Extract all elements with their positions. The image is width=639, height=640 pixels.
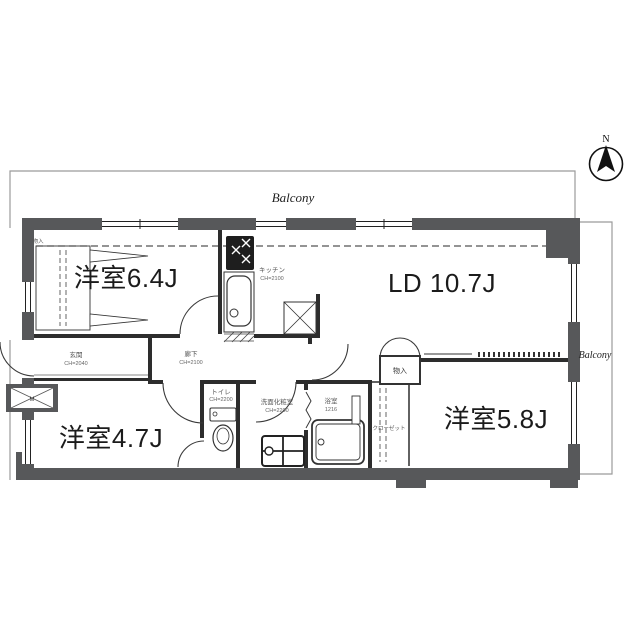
bedroom2-label: 洋室4.7J xyxy=(59,423,163,453)
meter-box-label: M xyxy=(30,397,35,403)
balcony-top-label: Balcony xyxy=(272,190,315,205)
hallway-label: 廊下 xyxy=(185,349,199,358)
bathroom-label: 浴室 xyxy=(325,396,339,405)
window-right-bedroom3 xyxy=(568,382,580,444)
meter-box: M xyxy=(6,384,58,412)
hallway-ch: CH=2100 xyxy=(179,360,202,366)
washing-machine-icon xyxy=(262,436,304,466)
balcony-right-label: Balcony xyxy=(579,350,612,361)
floor-plan-svg: M xyxy=(0,0,639,640)
bath-fixture xyxy=(352,396,360,424)
compass-north-label: N xyxy=(602,134,609,145)
kitchen-label: キッチン xyxy=(259,266,285,274)
toilet-ch: CH=2200 xyxy=(209,397,232,403)
window-top-living xyxy=(356,218,412,230)
toilet-label: トイレ xyxy=(211,389,231,396)
kitchen-ch: CH=2100 xyxy=(260,276,283,282)
bedroom3-label: 洋室5.8J xyxy=(444,404,548,434)
living-dining-label: LD 10.7J xyxy=(388,268,496,298)
window-left-bedroom2 xyxy=(22,420,34,464)
window-left-bedroom1 xyxy=(22,282,34,312)
window-right-living xyxy=(568,264,580,322)
bedroom1-label: 洋室6.4J xyxy=(74,263,178,293)
bathroom-size: 1216 xyxy=(325,407,337,413)
entrance-ch: CH=2040 xyxy=(64,361,87,367)
kitchen-sink-icon xyxy=(224,272,254,332)
living-storage-label: 物入 xyxy=(393,366,407,375)
stove-icon xyxy=(226,236,254,270)
bedroom1-storage-label: 物入 xyxy=(32,237,44,245)
washroom-ch: CH=2200 xyxy=(265,408,288,414)
floor-plan-image: M xyxy=(0,0,639,640)
window-top-bedroom1 xyxy=(102,218,178,230)
closet-label: クローゼット xyxy=(372,424,405,432)
entrance-label: 玄関 xyxy=(70,350,83,359)
washroom-label: 洗面化粧室 xyxy=(261,397,294,406)
bathroom-label-group: 浴室 1216 xyxy=(325,396,339,413)
window-top-kitchen xyxy=(256,218,286,230)
